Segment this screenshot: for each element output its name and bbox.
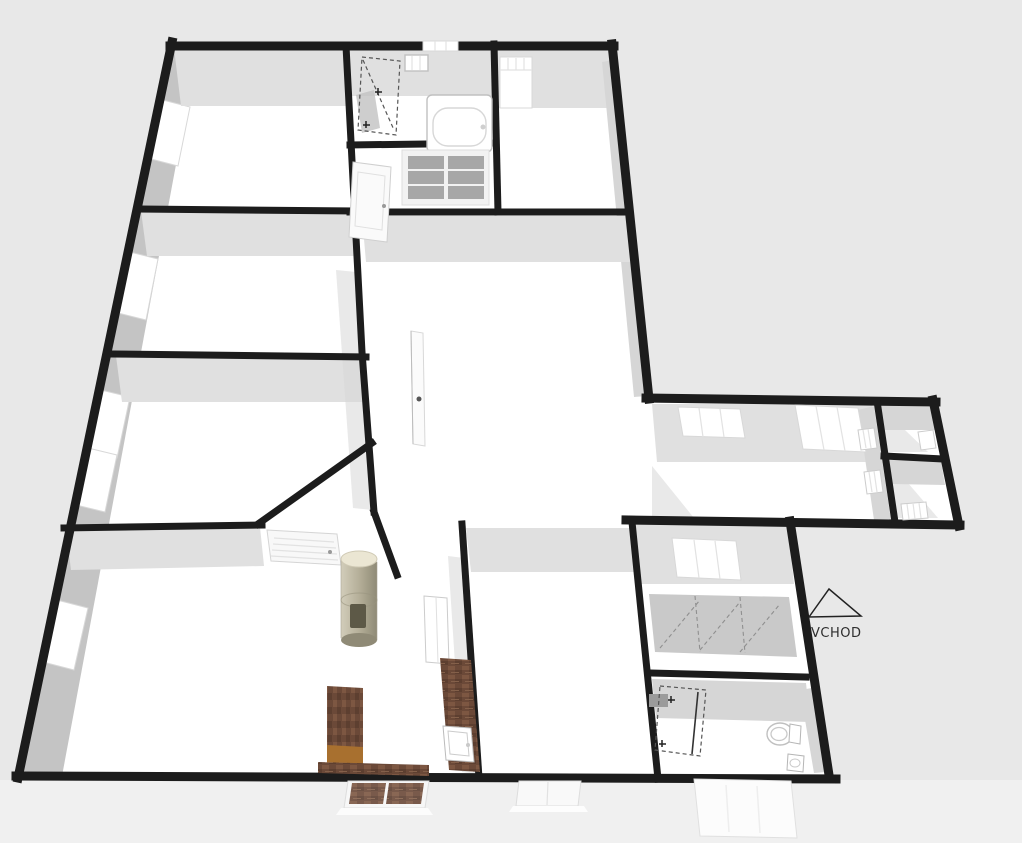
louver-door[interactable] (267, 530, 341, 565)
floor-plan-canvas[interactable]: VCHOD (0, 0, 1022, 843)
door-outside-bathroom[interactable] (694, 779, 797, 838)
toilet[interactable] (767, 723, 801, 745)
door-handle (417, 397, 422, 402)
top-wall-window[interactable] (423, 41, 458, 51)
entrance-marker[interactable]: VCHOD (809, 589, 862, 641)
window[interactable] (678, 407, 745, 438)
window-outside-kitchen[interactable] (336, 781, 433, 815)
window-top-right-room[interactable] (500, 57, 532, 108)
door-handle (328, 550, 332, 554)
kitchen-sink[interactable] (443, 726, 474, 762)
door-handle (382, 204, 386, 208)
wardrobe-row[interactable] (649, 594, 797, 657)
wall-room2-room3[interactable] (114, 354, 366, 357)
floor-plan-3d-view[interactable]: VCHOD (0, 0, 1022, 843)
glazed-door[interactable] (795, 405, 866, 452)
toilet-grille[interactable] (901, 502, 928, 520)
wall-farright-mid[interactable] (884, 456, 942, 459)
bathroom-sink[interactable] (787, 754, 804, 772)
radiator[interactable] (649, 694, 668, 707)
radiator[interactable] (864, 470, 883, 494)
paned-window[interactable] (402, 150, 489, 205)
bathtub[interactable] (427, 95, 492, 152)
wall-bottom[interactable] (16, 776, 836, 779)
open-door[interactable] (411, 331, 425, 446)
wall-entry-mid[interactable] (650, 673, 806, 677)
interior-door[interactable] (349, 162, 391, 242)
window[interactable] (672, 538, 741, 580)
window-outside-midroom[interactable] (509, 781, 588, 812)
wall-cabinet[interactable] (405, 55, 428, 71)
small-fixture[interactable] (918, 430, 936, 450)
wall-room1-room2[interactable] (140, 209, 354, 211)
radiator[interactable] (858, 428, 877, 450)
wall-wing-top[interactable] (646, 398, 936, 402)
wood-stove[interactable] (341, 551, 377, 647)
wall-bathroom-east[interactable] (494, 44, 498, 212)
wall-living-north[interactable] (64, 525, 262, 528)
stove-door (350, 604, 366, 628)
entrance-arrow (809, 589, 861, 617)
entrance-label: VCHOD (811, 626, 862, 641)
